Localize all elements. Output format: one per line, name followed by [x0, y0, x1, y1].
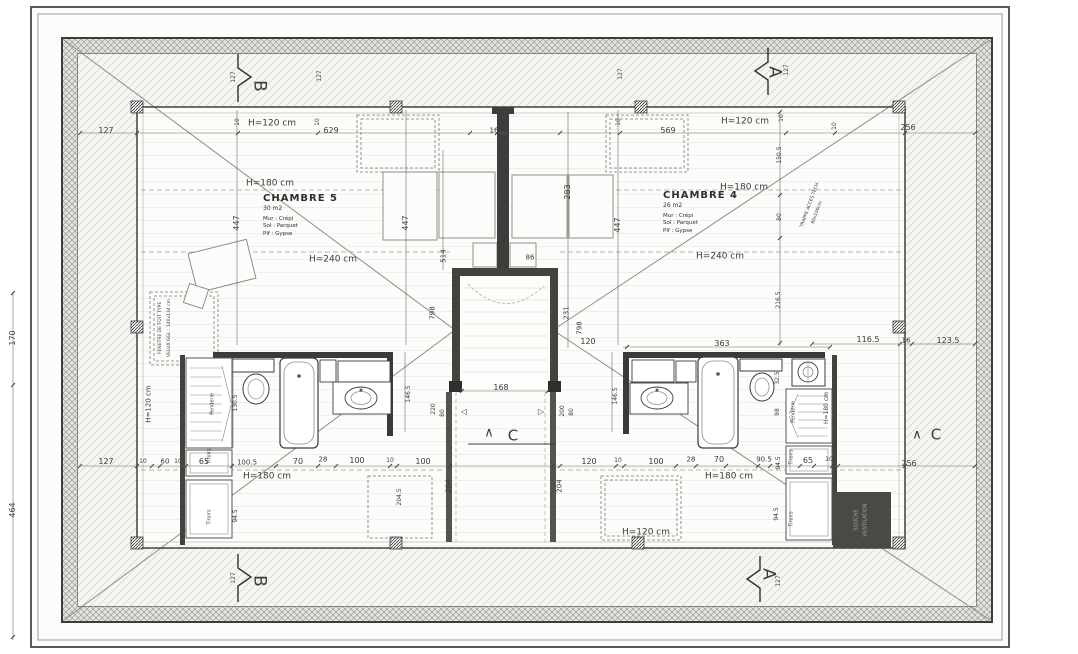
ventilation-shaft: [833, 492, 891, 548]
floorplan-page: CHAMBRE 5 30 m2 Mur : Crépi Sol : Parque…: [0, 0, 1078, 654]
bathtub-left: [280, 358, 318, 448]
room-label-chambre-4: CHAMBRE 4 26 m2 Mur : Crépi Sol : Parque…: [663, 190, 738, 235]
room-name: CHAMBRE 4: [663, 190, 738, 201]
room-name: CHAMBRE 5: [263, 193, 338, 204]
room-area: 30 m2: [263, 205, 338, 212]
wardrobe-left: [180, 355, 232, 545]
floorplan-drawing: [0, 0, 1078, 654]
stairwell: [449, 268, 561, 392]
room-specs: Mur : Crépi Sol : Parquet Plf : Gypse: [263, 216, 338, 238]
bathtub-right: [698, 357, 738, 448]
room-label-chambre-5: CHAMBRE 5 30 m2 Mur : Crépi Sol : Parque…: [263, 193, 338, 238]
room-area: 26 m2: [663, 202, 738, 209]
room-specs: Mur : Crépi Sol : Parquet Plf : Gypse: [663, 213, 738, 235]
